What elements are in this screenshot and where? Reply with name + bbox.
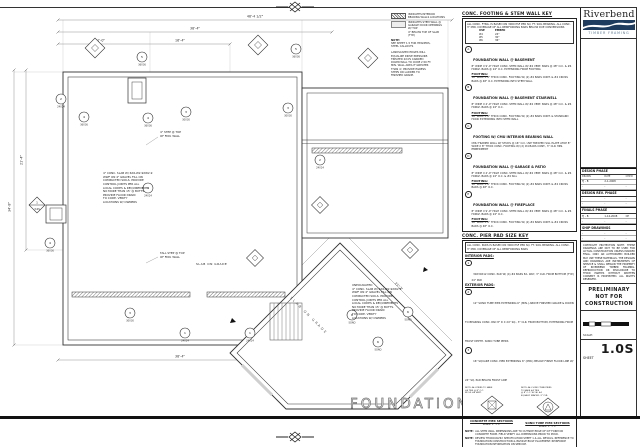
border-break-marker xyxy=(276,1,314,13)
project-info-box xyxy=(581,39,637,168)
footing-key-item: CFOOTING W/ CMU INTERIOR BEARING WALL CM… xyxy=(465,123,574,152)
hatch-swatch xyxy=(391,13,406,19)
step-note: 4" STEP @ TOP OF FDN. WALL xyxy=(160,131,192,138)
drawing-sheet: 48'-4 1/2" 38'-4" 11'-0" 16'-4" 34'-8" 2… xyxy=(0,0,640,447)
svg-text:5: 5 xyxy=(295,47,297,51)
logo-swoosh-graphic xyxy=(583,20,635,30)
item-tag: C xyxy=(465,123,472,130)
logo-name: Riverbend xyxy=(583,9,635,20)
scale-label: SCALE: xyxy=(583,333,635,337)
svg-text:34'-8": 34'-8" xyxy=(8,202,12,212)
svg-text:4: 4 xyxy=(83,115,85,119)
copyright-notice: COPYRIGHT PROTECTION NOTE: THESE DRAWING… xyxy=(581,241,637,283)
svg-text:2: 2 xyxy=(319,158,321,162)
concrete-pier-diagram xyxy=(480,395,504,415)
sheet-label: SHEET xyxy=(583,356,634,360)
footing-key-title: CONC. FOOTING & STEM WALL KEY xyxy=(462,12,577,17)
svg-text:30X30: 30X30 xyxy=(182,119,190,122)
preliminary-stamp: PRELIMINARY NOT FOR CONSTRUCTION xyxy=(581,283,637,310)
stem-swatch xyxy=(391,21,406,28)
rebar-table: USEEMBED #424" #530" #636" xyxy=(479,29,572,42)
svg-text:1: 1 xyxy=(184,331,186,335)
design-phase-table: DESIGN PHASE DRAWNDATECHK'D TJ - B2-1-20… xyxy=(581,168,637,190)
svg-text:24X24: 24X24 xyxy=(316,167,324,170)
svg-text:38'-4": 38'-4" xyxy=(175,355,185,359)
legend-label: INDICATES INTERIOR BEARING WALLS LOCATIO… xyxy=(408,13,445,19)
footing-key-item: BFOUNDATION WALL @ BASEMENT STAIRWELL 8"… xyxy=(465,84,574,121)
foundation-walls xyxy=(46,72,452,409)
sheet-border-top xyxy=(0,7,637,8)
svg-text:16'-4": 16'-4" xyxy=(175,39,185,43)
garage-unexcavated-note: UNEXCAVATED 4" CONC. SLAB W/ 6X6-W2.9XW2… xyxy=(352,284,412,320)
finals-phase-table: FINALS PHASE TJ - B1-14-2008CE --- xyxy=(581,207,637,224)
item-tag: B xyxy=(465,84,472,91)
design-rev-phase-table: DESIGN REV. PHASE --- --- xyxy=(581,190,637,207)
step-note: TALL STEP @ TOP OF FDN. WALL xyxy=(160,252,192,259)
pier-key-item: 316" SQUARE CONC. PIER EXTENDING 6" (MIN… xyxy=(465,347,574,385)
border-break-marker xyxy=(276,431,314,443)
svg-text:36X36: 36X36 xyxy=(46,250,54,253)
svg-text:24X24: 24X24 xyxy=(246,340,254,343)
footing-key-item: AFOUNDATION WALL @ BASEMENT 8" WIDE X 9'… xyxy=(465,46,574,83)
item-tag: 2 xyxy=(465,289,472,296)
scale-bar xyxy=(583,320,631,328)
sono-tube-pier-section: NOTE: ALL SONO TUBE PIERS TO HAVE #4 TIE… xyxy=(521,387,574,428)
legend-stem-wall: INDICATES STEM WALL @ GARAGE DOOR OPENIN… xyxy=(391,21,445,37)
sheet-border-right xyxy=(636,7,637,417)
pier-key-item: 130X30X12 CONC. PAD W/ (4) #4 BARS EA. W… xyxy=(465,260,574,282)
logo-subtitle: TIMBER FRAMING xyxy=(583,31,635,35)
plan-legend: INDICATES INTERIOR BEARING WALLS LOCATIO… xyxy=(391,13,445,77)
item-tag: 3 xyxy=(465,347,472,354)
svg-text:36X36: 36X36 xyxy=(138,64,146,67)
company-logo: Riverbend TIMBER FRAMING xyxy=(581,7,637,39)
svg-text:48'-4 1/2": 48'-4 1/2" xyxy=(247,15,264,19)
sheet-number-area: 1.0S SHEET xyxy=(581,339,637,416)
legend-note-text: SEE SHEET 1.5 FOR HEADERS, STEEL CALLOUT… xyxy=(391,42,445,48)
svg-text:24X24: 24X24 xyxy=(181,340,189,343)
svg-text:2: 2 xyxy=(60,97,62,101)
sono-tube-diagram xyxy=(536,397,560,417)
svg-text:4: 4 xyxy=(49,241,51,245)
item-tag: 1 xyxy=(465,260,472,267)
svg-text:1: 1 xyxy=(249,331,251,335)
svg-text:1: 1 xyxy=(36,201,38,205)
svg-text:4: 4 xyxy=(147,116,149,120)
svg-text:3: 3 xyxy=(185,110,187,114)
interior-pads-label: INTERIOR PADS: xyxy=(465,254,574,258)
item-tag: A xyxy=(465,46,472,53)
footing-key-box: ALL CONC. FTNG. IS BASED ON 3000 PSF PER… xyxy=(462,18,577,232)
svg-text:38'-4": 38'-4" xyxy=(190,27,200,31)
general-note: NOTE:REVIEW THOROUGHLY SPECIFICATION SHE… xyxy=(465,437,574,446)
slab-on-grade-label: SLAB ON GRADE xyxy=(196,263,227,267)
legend-bearing-wall: INDICATES INTERIOR BEARING WALLS LOCATIO… xyxy=(391,13,445,19)
pier-key-title: CONC. PIER PAD SIZE KEY xyxy=(462,234,577,239)
svg-text:5: 5 xyxy=(141,55,143,59)
sheet-number: 1.0S xyxy=(583,341,634,356)
svg-text:6: 6 xyxy=(377,340,379,344)
svg-text:36X36: 36X36 xyxy=(144,125,152,128)
section-marker: 1 3.0S xyxy=(29,197,45,213)
svg-text:3: 3 xyxy=(129,311,131,315)
svg-text:3.0S: 3.0S xyxy=(34,207,40,211)
graphic-scale: SCALE: xyxy=(581,310,637,339)
pier-section-diagrams: NOTE: ALL PIERS TO HAVE #4 TIES @ 8" O.C… xyxy=(465,387,574,428)
footing-key-item: DFOUNDATION WALL @ GARAGE & PATIO 8" WID… xyxy=(465,153,574,190)
pier-key-intro: ALL CONC. PADS IS BASED ON 3000 PSF PER … xyxy=(465,242,574,252)
ship-drawings-table: SHIP DRAWINGS --- --- xyxy=(581,224,637,241)
item-tag: D xyxy=(465,153,472,160)
pier-key-item: 212" SONO TUBE PIER EXTENDING 6" (MIN.) … xyxy=(465,289,574,346)
svg-text:30X30: 30X30 xyxy=(284,115,292,118)
svg-text:3: 3 xyxy=(287,106,289,110)
general-note: NOTE:ALL STEM WALL DIMENSIONS ARE TO OUT… xyxy=(465,430,574,436)
svg-text:36X36: 36X36 xyxy=(292,56,300,59)
exterior-pads-label: EXTERIOR PADS: xyxy=(465,283,574,287)
title-block: Riverbend TIMBER FRAMING DESIGN PHASE DR… xyxy=(580,7,637,416)
svg-text:24X24: 24X24 xyxy=(57,106,65,109)
svg-text:21'-4": 21'-4" xyxy=(20,155,24,165)
svg-text:30X30: 30X30 xyxy=(126,320,134,323)
footing-key-intro: ALL CONC. FTNG. IS BASED ON 3000 PSF PER… xyxy=(465,21,574,45)
concrete-pier-section: NOTE: ALL PIERS TO HAVE #4 TIES @ 8" O.C… xyxy=(465,387,518,428)
notes-column: CONC. FOOTING & STEM WALL KEY ALL CONC. … xyxy=(462,10,577,447)
svg-text:SONO: SONO xyxy=(374,349,381,352)
sheet-border-bottom xyxy=(0,416,640,419)
legend-label: INDICATES STEM WALL @ GARAGE DOOR OPENIN… xyxy=(408,21,445,37)
slab-note: 4" CONC. SLAB W/ 6X6-W2.9XW2.9 WWF ON 4"… xyxy=(103,172,157,205)
svg-text:SONO: SONO xyxy=(348,322,355,325)
item-tag: E xyxy=(465,191,472,198)
svg-text:36X36: 36X36 xyxy=(80,124,88,127)
footing-key-item: EFOUNDATION WALL @ FIREPLACE 8" WIDE X 9… xyxy=(465,191,574,228)
landscape-note: LANDSCAPED EDGES WILL EQUALIZE DRIVE PRE… xyxy=(391,51,445,77)
